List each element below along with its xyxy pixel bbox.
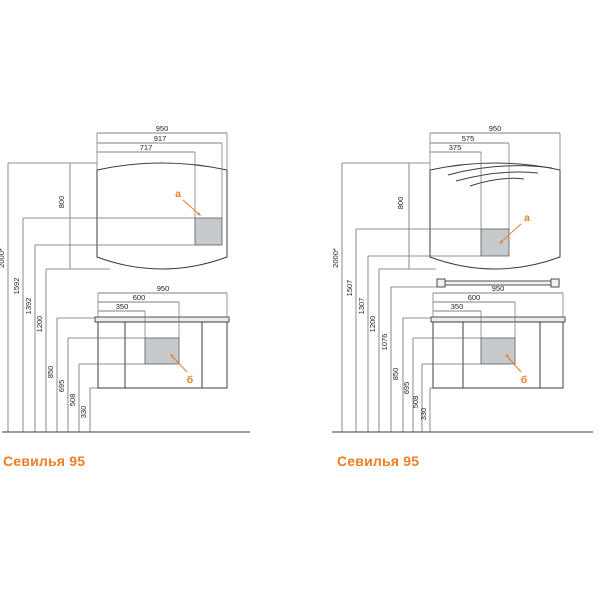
- callout-socket-label: a: [524, 212, 530, 224]
- diagram-right: 950 575 375 950 600 350 2000* 1507 1307 …: [331, 124, 593, 432]
- drawing-canvas: 950 917 717 950 600 350 2000* 1592 1392 …: [0, 0, 600, 600]
- dim-h-1507: 1507: [345, 280, 354, 297]
- dim-total-height: 2000*: [0, 248, 6, 268]
- extension-lines: [342, 133, 563, 388]
- dim-socket-right: 917: [154, 134, 167, 143]
- extension-lines: [8, 133, 227, 388]
- callout-socket-leader: [183, 200, 200, 215]
- dim-total-height: 2000*: [331, 248, 340, 268]
- product-title-right: Севилья 95: [337, 453, 419, 469]
- technical-drawing-page: 950 917 717 950 600 350 2000* 1592 1392 …: [0, 0, 600, 600]
- dim-cutout-left: 350: [451, 302, 464, 311]
- product-title-left: Севилья 95: [3, 453, 85, 469]
- towel-rail-bracket-left: [437, 279, 445, 287]
- dim-cabinet-width: 950: [492, 284, 505, 293]
- dim-h-1392: 1392: [24, 298, 33, 315]
- dim-h-850: 850: [46, 366, 55, 379]
- dim-socket-left: 375: [449, 143, 462, 152]
- dim-socket-right: 575: [462, 134, 475, 143]
- dim-mirror-width: 950: [489, 124, 502, 133]
- dim-mirror-height: 800: [57, 196, 66, 209]
- dim-cabinet-width: 950: [157, 284, 170, 293]
- countertop: [431, 317, 565, 322]
- mirror-outline: [97, 163, 227, 269]
- towel-rail-bracket-right: [551, 279, 559, 287]
- diagram-left: 950 917 717 950 600 350 2000* 1592 1392 …: [0, 124, 250, 432]
- dim-h-508: 508: [411, 396, 420, 409]
- dim-cutout-right: 600: [468, 293, 481, 302]
- callout-sink-label: б: [521, 374, 528, 386]
- dim-socket-left: 717: [140, 143, 153, 152]
- dim-h-1592: 1592: [12, 278, 21, 295]
- countertop: [95, 317, 229, 322]
- dim-mirror-height: 800: [396, 197, 405, 210]
- callout-socket-label: a: [175, 188, 181, 200]
- dim-h-330: 330: [79, 406, 88, 419]
- cabinet-sink-cutout: [145, 338, 179, 364]
- mirror-socket-cutout: [195, 218, 222, 245]
- mirror-socket-cutout: [481, 229, 509, 256]
- mirror-light-arcs: [448, 166, 552, 186]
- dim-h-1076: 1076: [380, 334, 389, 351]
- height-dimension-lines: [8, 163, 90, 432]
- dim-h-695: 695: [402, 382, 411, 395]
- dim-cutout-right: 600: [133, 293, 146, 302]
- dim-h-1200: 1200: [368, 316, 377, 333]
- dim-h-850: 850: [391, 368, 400, 381]
- dim-h-1200: 1200: [35, 316, 44, 333]
- dim-h-508: 508: [68, 394, 77, 407]
- callout-sink-label: б: [187, 374, 194, 386]
- dim-h-695: 695: [57, 380, 66, 393]
- dim-cutout-left: 350: [116, 302, 129, 311]
- dim-h-1307: 1307: [357, 298, 366, 315]
- dim-h-330: 330: [419, 408, 428, 421]
- dim-mirror-width: 950: [156, 124, 169, 133]
- height-dimension-lines: [342, 163, 430, 432]
